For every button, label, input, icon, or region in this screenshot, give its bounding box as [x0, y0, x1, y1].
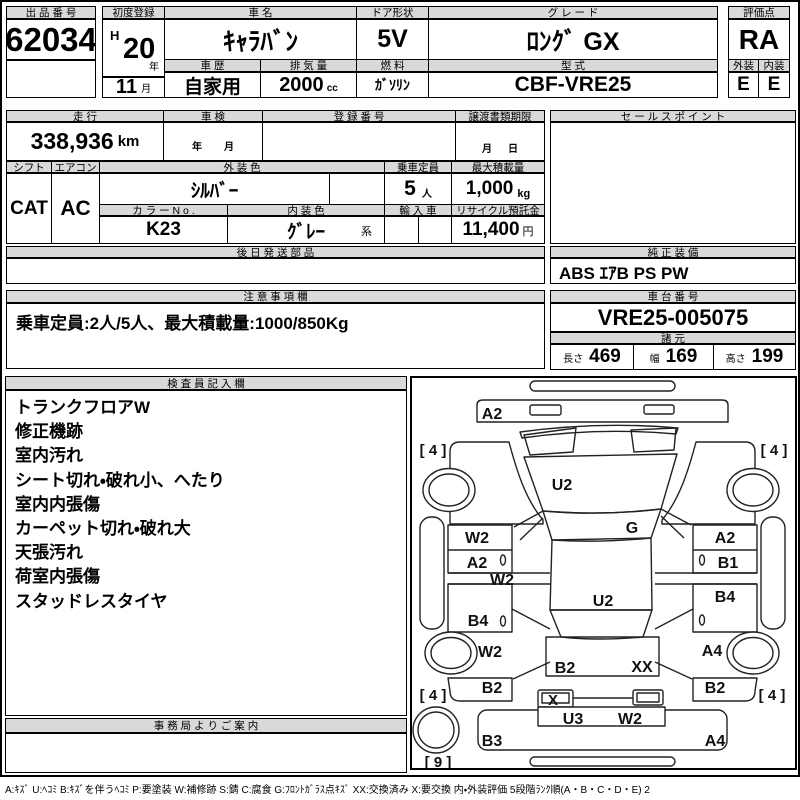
later-parts-body: [6, 258, 545, 284]
max-load-header: 最大積載量: [451, 161, 545, 173]
spec-height-value: 199: [752, 346, 784, 368]
capacity-unit: 人: [422, 185, 432, 204]
chassis-number-value: VRE25-005075: [550, 303, 796, 332]
grade-header: グ レ ー ド: [428, 6, 718, 19]
door-shape-value: 5V: [356, 19, 429, 60]
spec-width-cell: 幅 169: [633, 344, 714, 370]
exterior-color-header: 外 装 色: [99, 161, 385, 173]
damage-label: W2: [478, 644, 502, 661]
door-handle: [700, 555, 705, 565]
score-value: RA: [728, 19, 790, 60]
registration-number-value: [262, 122, 456, 161]
damage-label: A2: [482, 406, 503, 423]
exterior-color-empty-cell: [329, 173, 385, 205]
import-car-header: 輸 入 車: [384, 204, 452, 216]
inspector-line: トランクフロアW: [15, 396, 397, 420]
auction-sheet: 出 品 番 号 62034 初度登録 H 20 年 11 月 車 名 ｷｬﾗﾊﾞ…: [0, 0, 800, 800]
notes-header: 注 意 事 項 欄: [6, 290, 545, 303]
inspector-line: 天張汚れ: [15, 541, 397, 565]
specs-header: 諸 元: [550, 332, 796, 344]
inspection-header: 車 検: [163, 110, 263, 122]
exterior-color-value: ｼﾙﾊﾞｰ: [99, 173, 330, 205]
interior-grade-value: E: [758, 72, 790, 98]
inspector-line: カーペット切れ・破れ大: [15, 517, 397, 541]
lot-number-value: 62034: [6, 19, 96, 60]
transfer-deadline-value: 月 日: [455, 122, 545, 161]
inspection-value: 年 月: [163, 122, 263, 161]
damage-label: G: [626, 520, 638, 537]
office-info-body: [5, 733, 407, 773]
inspector-line: 修正機跡: [15, 420, 397, 444]
color-no-value: K23: [99, 216, 228, 244]
exterior-grade-value: E: [728, 72, 759, 98]
chassis-number-header: 車 台 番 号: [550, 290, 796, 303]
oem-equipment-value: ABS ｴｱB PS PW: [550, 258, 796, 284]
tire-depth-label: [ 4 ]: [759, 687, 786, 704]
lot-number-empty-cell: [6, 60, 96, 98]
recycle-unit: 円: [523, 223, 534, 243]
fold-line: [512, 609, 550, 629]
damage-label: W2: [465, 530, 489, 547]
oem-equipment-header: 純 正 装 備: [550, 246, 796, 258]
max-load-unit: kg: [517, 188, 530, 204]
rear-left-wheel: [425, 632, 477, 674]
rear-bumper-strip: [530, 757, 675, 766]
spec-height-label: 高さ: [726, 350, 746, 365]
spec-width-value: 169: [666, 346, 698, 368]
first-registration-month-cell: 11 月: [102, 77, 165, 98]
year-unit: 年: [149, 58, 159, 73]
vehicle-diagram-box: A2 [ 4 ] [ 4 ] U2 G W2 A2 W2 A2 B1 B4 B4…: [410, 376, 797, 770]
damage-label: A2: [715, 530, 736, 547]
damage-label: B2: [705, 680, 726, 697]
import-car-cell-2: [418, 216, 452, 244]
transfer-deadline-header: 譲渡書類期限: [455, 110, 545, 122]
front-roof-band-shape: [543, 509, 661, 541]
sales-point-header: セ ー ル ス ポ イ ン ト: [550, 110, 796, 122]
front-left-wheel: [423, 469, 475, 512]
door-handle: [700, 615, 705, 625]
tire-depth-label: [ 4 ]: [420, 442, 447, 459]
car-name-value: ｷｬﾗﾊﾞﾝ: [164, 19, 357, 60]
tire-depth-label: [ 4 ]: [761, 442, 788, 459]
front-bumper-shape: [530, 381, 675, 391]
transfer-month-placeholder: 月: [482, 140, 492, 155]
first-reg-month: 11: [116, 77, 137, 98]
fold-line: [513, 662, 550, 679]
capacity-value: 5 人: [384, 173, 452, 205]
damage-label: B2: [482, 680, 503, 697]
spec-width-label: 幅: [650, 350, 660, 365]
fold-line: [661, 509, 691, 525]
rear-right-wheel: [727, 632, 779, 674]
spare-tire-shape: [413, 707, 459, 753]
max-load-number: 1,000: [466, 178, 514, 200]
registration-number-header: 登 録 番 号: [262, 110, 456, 122]
inspector-notes-header: 検 査 員 記 入 欄: [5, 376, 407, 390]
left-rear-corner-shape: [448, 678, 512, 701]
import-car-cell-1: [384, 216, 419, 244]
interior-color-suffix: 系: [361, 223, 372, 239]
model-code-header: 型 式: [428, 59, 718, 72]
displacement-unit: cc: [327, 83, 338, 97]
capacity-header: 乗車定員: [384, 161, 452, 173]
mileage-value: 338,936 km: [6, 122, 164, 161]
displacement-header: 排 気 量: [260, 59, 357, 72]
notes-body: 乗車定員:2人/5人、最大積載量:1000/850Kg: [6, 303, 545, 369]
damage-label: U2: [552, 477, 573, 494]
damage-label: B4: [468, 613, 489, 630]
interior-color-value: ｸﾞﾚｰ 系: [227, 216, 385, 244]
right-rocker-shape: [761, 517, 785, 629]
lot-number-header: 出 品 番 号: [6, 6, 96, 19]
recycle-deposit-value: 11,400 円: [451, 216, 545, 244]
inspector-line: スタッドレスタイヤ: [15, 590, 397, 614]
max-load-value: 1,000 kg: [451, 173, 545, 205]
front-right-wheel: [727, 469, 779, 512]
vehicle-diagram: A2 [ 4 ] [ 4 ] U2 G W2 A2 W2 A2 B1 B4 B4…: [412, 378, 795, 768]
cowl-band-shape: [520, 425, 678, 438]
office-info-header: 事 務 局 よ り ご 案 内: [5, 718, 407, 733]
spec-length-label: 長さ: [563, 350, 583, 365]
car-name-header: 車 名: [164, 6, 357, 19]
exterior-grade-header: 外装: [728, 59, 759, 72]
damage-label: U3: [563, 711, 584, 728]
spec-length-cell: 長さ 469: [550, 344, 634, 370]
damage-label: U2: [593, 593, 614, 610]
damage-label: XX: [631, 659, 653, 676]
inspection-month-placeholder: 月: [224, 138, 234, 153]
inspector-line: シート切れ・破れ小、へたり: [15, 469, 397, 493]
inspection-year-placeholder: 年: [192, 138, 202, 153]
era-letter: H: [110, 28, 119, 43]
displacement-value: 2000 cc: [260, 72, 357, 98]
damage-label: B4: [715, 589, 736, 606]
interior-color-name: ｸﾞﾚｰ: [287, 217, 325, 244]
inspector-line: 室内汚れ: [15, 444, 397, 468]
front-right-lamp: [644, 405, 674, 414]
shift-value: CAT: [6, 173, 52, 244]
damage-label: A4: [702, 643, 723, 660]
right-tail-lamp-inner: [637, 693, 659, 702]
inspector-notes-body: トランクフロアW 修正機跡 室内汚れ シート切れ・破れ小、へたり 室内内張傷 カ…: [5, 390, 407, 716]
capacity-number: 5: [404, 177, 416, 201]
spare-tire-label: [ 9 ]: [425, 754, 452, 768]
shift-header: シフト: [6, 161, 52, 173]
spec-height-cell: 高さ 199: [713, 344, 796, 370]
mileage-unit: km: [118, 133, 140, 150]
mileage-number: 338,936: [31, 128, 114, 155]
sales-point-body: [550, 122, 796, 244]
interior-color-header: 内 装 色: [227, 204, 385, 216]
fold-line: [655, 662, 692, 679]
damage-label: A2: [467, 555, 488, 572]
tire-depth-label: [ 4 ]: [420, 687, 447, 704]
first-registration-header: 初度登録: [102, 6, 165, 19]
door-handle: [501, 555, 506, 565]
transfer-day-placeholder: 日: [508, 140, 518, 155]
damage-label: A4: [705, 733, 726, 750]
later-parts-header: 後 日 発 送 部 品: [6, 246, 545, 258]
inspector-line: 室内内張傷: [15, 493, 397, 517]
door-shape-header: ドア形状: [356, 6, 429, 19]
damage-label: B1: [718, 555, 739, 572]
damage-code-legend: A:ｷｽﾞ U:ﾍｺﾐ B:ｷｽﾞを伴うﾍｺﾐ P:要塗装 W:補修跡 S:錆 …: [5, 781, 797, 797]
recycle-number: 11,400: [462, 219, 519, 241]
grade-value: ﾛﾝｸﾞ GX: [428, 19, 718, 60]
damage-label: B3: [482, 733, 503, 750]
front-panel-shape: [477, 400, 728, 422]
spec-length-value: 469: [589, 346, 621, 368]
door-handle: [501, 616, 506, 626]
fuel-header: 燃 料: [356, 59, 429, 72]
left-rocker-shape: [420, 517, 444, 629]
fuel-value: ｶﾞｿﾘﾝ: [356, 72, 429, 98]
history-header: 車 歴: [164, 59, 261, 72]
month-unit: 月: [141, 80, 151, 97]
damage-label: X: [548, 692, 558, 709]
recycle-deposit-header: リサイクル預託金: [451, 204, 545, 216]
first-registration-year-cell: H 20 年: [102, 19, 165, 77]
history-value: 自家用: [164, 72, 261, 98]
fold-line: [655, 609, 693, 629]
displacement-number: 2000: [279, 74, 324, 97]
inspector-line: 荷室内張傷: [15, 565, 397, 589]
color-no-header: カ ラ ー N o .: [99, 204, 228, 216]
model-code-value: CBF-VRE25: [428, 72, 718, 98]
windshield-left-pane: [524, 428, 576, 455]
windshield-shape: [524, 454, 677, 513]
front-left-lamp: [530, 405, 561, 415]
rear-glass-shape: [550, 610, 652, 639]
interior-grade-header: 内装: [758, 59, 790, 72]
score-header: 評価点: [728, 6, 790, 19]
aircon-header: エアコン: [51, 161, 100, 173]
rear-gate-shape: [538, 707, 665, 726]
damage-label: W2: [618, 711, 642, 728]
mileage-header: 走 行: [6, 110, 164, 122]
damage-label: B2: [555, 660, 576, 677]
aircon-value: AC: [51, 173, 100, 244]
damage-label: W2: [490, 572, 514, 589]
